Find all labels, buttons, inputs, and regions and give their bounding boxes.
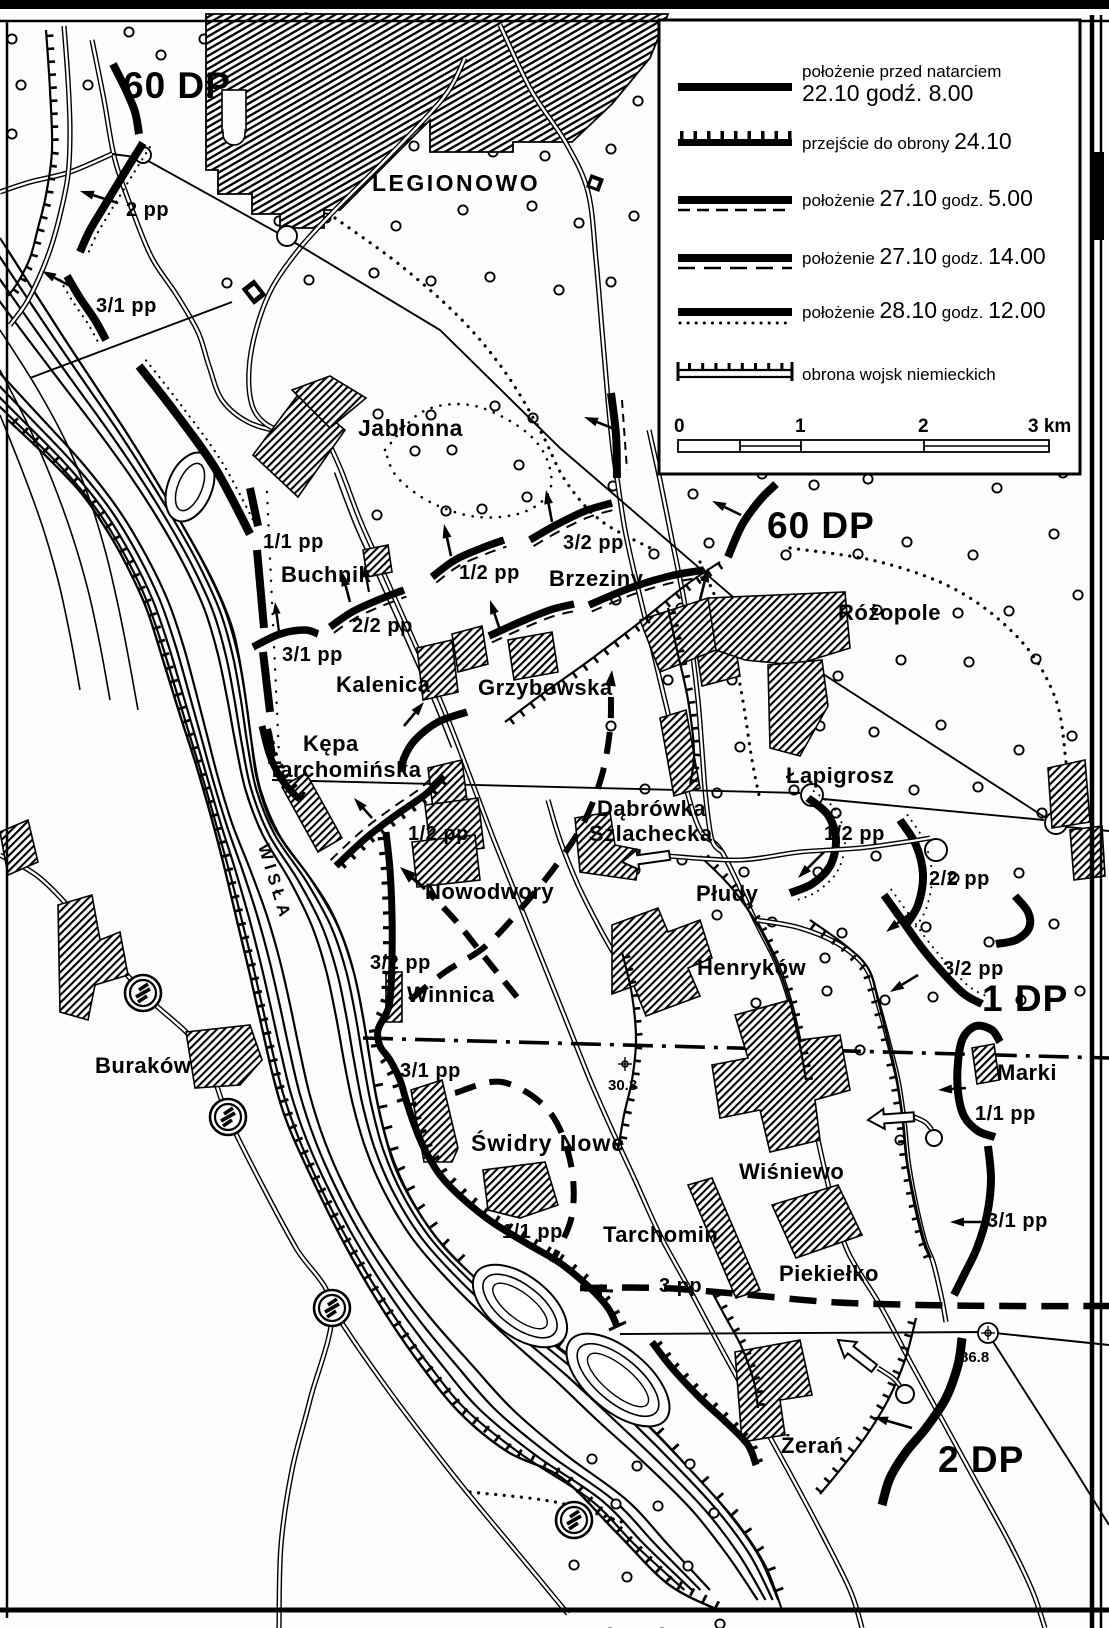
svg-text:Nowodwory: Nowodwory <box>425 879 554 904</box>
svg-text:1/2 pp: 1/2 pp <box>459 562 520 584</box>
svg-text:60 DP: 60 DP <box>123 65 231 106</box>
svg-text:3 pp: 3 pp <box>659 1275 702 1297</box>
svg-text:Żerań: Żerań <box>781 1433 843 1458</box>
svg-text:Łapigrosz: Łapigrosz <box>786 763 894 788</box>
svg-text:Dąbrówka: Dąbrówka <box>597 796 706 821</box>
svg-text:Winnica: Winnica <box>407 982 495 1007</box>
svg-text:2/2 pp: 2/2 pp <box>929 868 990 890</box>
svg-text:3 km: 3 km <box>1028 416 1071 437</box>
svg-text:1 DP: 1 DP <box>982 978 1068 1019</box>
svg-text:Jabłonna: Jabłonna <box>358 415 463 441</box>
svg-text:Piekiełko: Piekiełko <box>779 1261 879 1286</box>
svg-text:1: 1 <box>795 416 806 437</box>
svg-text:3/1 pp: 3/1 pp <box>96 295 157 317</box>
svg-text:1/2 pp: 1/2 pp <box>824 823 885 845</box>
svg-text:3/2 pp: 3/2 pp <box>370 952 431 974</box>
svg-text:Wiśniewo: Wiśniewo <box>739 1159 844 1184</box>
svg-text:Kępa: Kępa <box>303 731 359 756</box>
svg-text:0: 0 <box>674 416 685 437</box>
svg-text:LEGIONOWO: LEGIONOWO <box>372 170 540 196</box>
svg-text:1/1 pp: 1/1 pp <box>975 1103 1036 1125</box>
svg-text:3/2 pp: 3/2 pp <box>943 958 1004 980</box>
svg-text:Brzeziny: Brzeziny <box>549 566 644 591</box>
svg-text:1/1 pp: 1/1 pp <box>263 531 324 553</box>
svg-text:Kalenica: Kalenica <box>336 672 431 697</box>
svg-text:Świdry Nowe: Świdry Nowe <box>471 1129 625 1156</box>
svg-text:Szlachecka: Szlachecka <box>589 821 713 846</box>
svg-text:Buchnik: Buchnik <box>281 562 372 587</box>
svg-text:położenie przed natarciem: położenie przed natarciem <box>802 62 1001 81</box>
svg-text:2: 2 <box>918 416 929 437</box>
svg-text:Tarchomin: Tarchomin <box>603 1222 718 1247</box>
svg-text:2/2 pp: 2/2 pp <box>352 615 413 637</box>
svg-text:3/1 pp: 3/1 pp <box>400 1060 461 1082</box>
svg-text:3/1 pp: 3/1 pp <box>282 644 343 666</box>
svg-text:Różopole: Różopole <box>838 600 941 625</box>
svg-text:Marki: Marki <box>997 1060 1057 1085</box>
svg-text:Buraków: Buraków <box>95 1053 192 1078</box>
svg-text:1/2 pp: 1/2 pp <box>408 823 469 845</box>
svg-text:3/2 pp: 3/2 pp <box>563 532 624 554</box>
svg-text:Płudy: Płudy <box>696 881 759 906</box>
svg-text:2 pp: 2 pp <box>126 199 169 221</box>
svg-text:3/1 pp: 3/1 pp <box>987 1210 1048 1232</box>
svg-text:Grzybowska: Grzybowska <box>478 675 613 700</box>
svg-text:60 DP: 60 DP <box>767 505 875 546</box>
svg-text:obrona wojsk niemieckich: obrona wojsk niemieckich <box>802 365 996 384</box>
svg-text:2 DP: 2 DP <box>938 1439 1024 1480</box>
svg-text:Tarchomińska: Tarchomińska <box>268 757 422 782</box>
svg-text:Henryków: Henryków <box>697 955 807 980</box>
svg-text:22.10 godź. 8.00: 22.10 godź. 8.00 <box>802 80 973 106</box>
svg-text:1/1 pp: 1/1 pp <box>502 1221 563 1243</box>
